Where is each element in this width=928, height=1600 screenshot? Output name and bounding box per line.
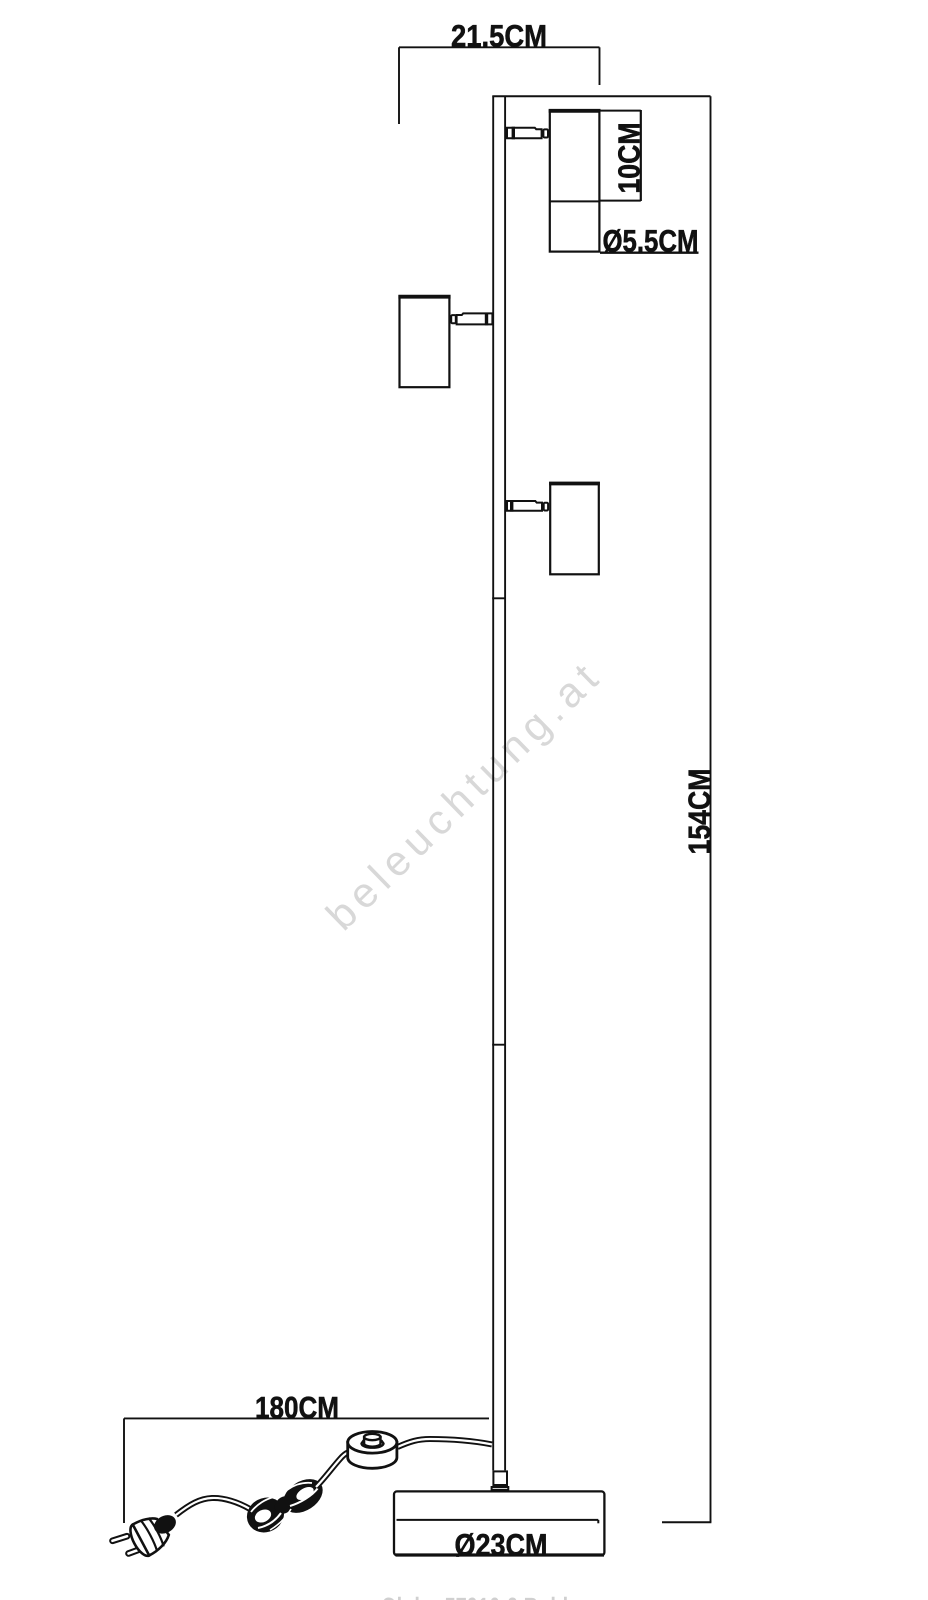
- svg-text:Ø23CM: Ø23CM: [455, 1528, 548, 1563]
- svg-text:180CM: 180CM: [255, 1391, 339, 1425]
- svg-text:21.5CM: 21.5CM: [451, 19, 547, 54]
- svg-text:10CM: 10CM: [613, 123, 647, 194]
- svg-text:Globo 57910-2 Robby: Globo 57910-2 Robby: [381, 1593, 586, 1600]
- svg-text:154CM: 154CM: [682, 769, 717, 855]
- svg-text:Ø5.5CM: Ø5.5CM: [603, 224, 699, 259]
